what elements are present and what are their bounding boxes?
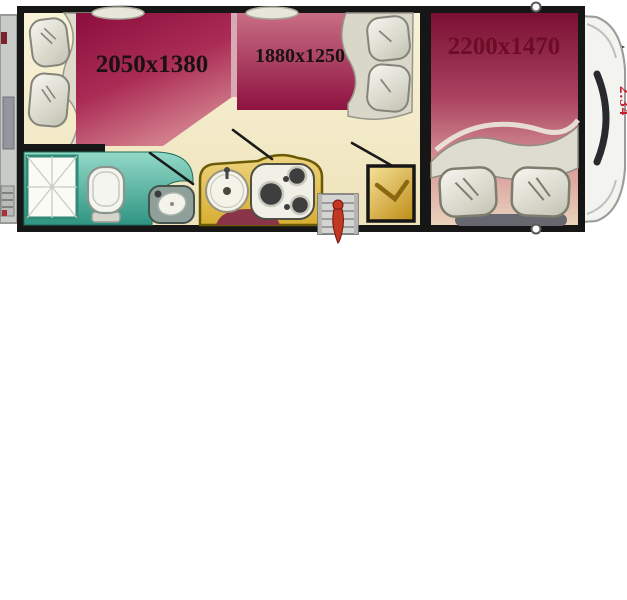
wardrobe bbox=[368, 166, 414, 221]
pillow-icon bbox=[439, 167, 497, 218]
rear-bed-size-label: 2050x1380 bbox=[96, 51, 209, 78]
floorplan-night-view: 2.34 bbox=[0, 0, 627, 245]
pillow-icon bbox=[366, 15, 411, 62]
van-front-body: 2.34 bbox=[580, 16, 627, 222]
shower-icon bbox=[27, 156, 77, 218]
entry-steps bbox=[318, 194, 358, 243]
toilet-icon bbox=[88, 167, 124, 222]
pillow-icon bbox=[366, 63, 411, 112]
overall-height-label: 2.34 bbox=[616, 86, 627, 116]
cab-bed-size-label: 2200x1470 bbox=[448, 33, 561, 60]
pillow-icon bbox=[28, 17, 70, 68]
kitchen bbox=[200, 155, 322, 225]
dinette-bed: 1880x1250 bbox=[231, 7, 413, 119]
motorhome-floorplan-figure: 6.62 2.34 bbox=[0, 0, 627, 600]
rear-ladder-icon bbox=[1, 186, 14, 216]
washbasin-icon bbox=[149, 186, 194, 223]
cab-dropdown-bed: 2200x1470 bbox=[431, 13, 578, 226]
entry-person-icon bbox=[333, 200, 344, 243]
pillow-icon bbox=[28, 72, 70, 127]
bathroom bbox=[17, 144, 194, 225]
rear-bumper bbox=[0, 15, 17, 223]
dinette-bed-size-label: 1880x1250 bbox=[255, 45, 345, 67]
hob-icon bbox=[251, 164, 314, 219]
pillow-icon bbox=[511, 167, 570, 217]
